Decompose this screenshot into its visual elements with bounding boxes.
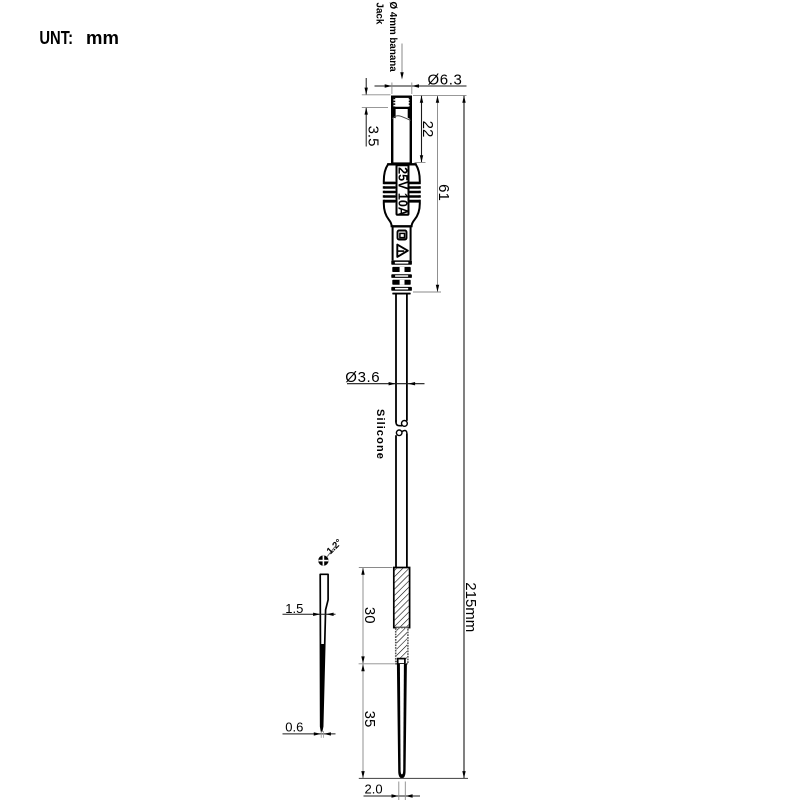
svg-text:Jack: Jack — [373, 3, 384, 25]
svg-text:215mm: 215mm — [462, 582, 479, 632]
svg-text:1.5: 1.5 — [285, 601, 303, 616]
svg-text:2.0: 2.0 — [365, 782, 383, 797]
svg-text:0.6: 0.6 — [285, 719, 303, 734]
svg-text:mm: mm — [86, 27, 119, 48]
svg-text:61: 61 — [435, 184, 452, 201]
svg-text:Silicone: Silicone — [374, 409, 386, 460]
svg-text:UNT:: UNT: — [39, 27, 73, 48]
svg-text:22: 22 — [419, 121, 436, 138]
svg-text:25V 10A: 25V 10A — [396, 167, 410, 216]
svg-text:35: 35 — [361, 711, 378, 728]
svg-text:3.5: 3.5 — [365, 126, 382, 147]
svg-text:Ø 4mm banana: Ø 4mm banana — [387, 2, 398, 73]
svg-text:30: 30 — [361, 607, 378, 624]
